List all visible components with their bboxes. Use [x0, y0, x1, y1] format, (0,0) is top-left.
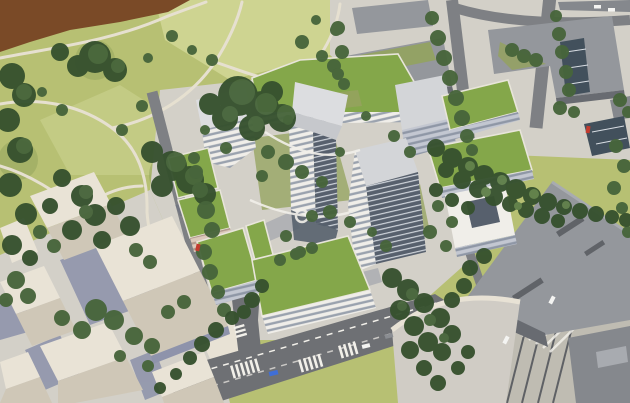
- scene-canvas: [0, 0, 630, 403]
- aerial-rendering: [0, 0, 630, 403]
- parked-car-1: [608, 8, 615, 12]
- parked-car-2: [594, 5, 601, 9]
